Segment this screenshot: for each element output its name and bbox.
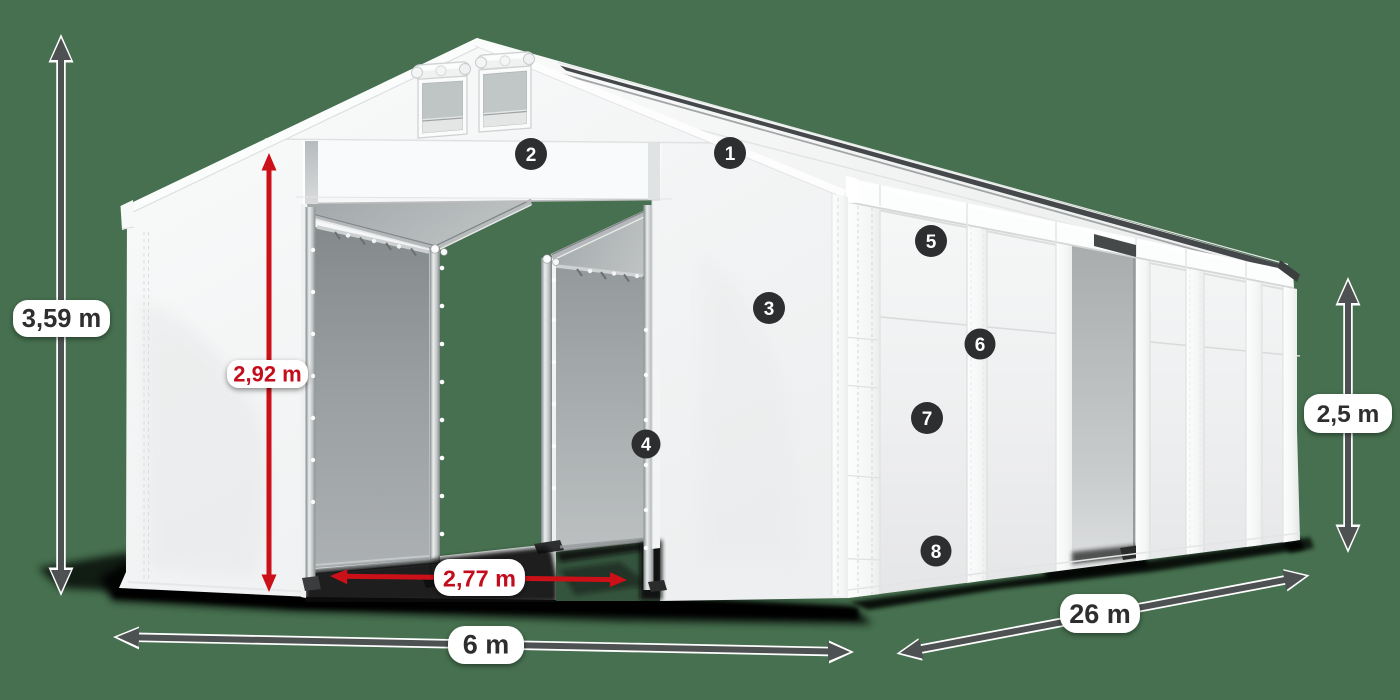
svg-text:3,59 m: 3,59 m: [22, 305, 101, 333]
svg-text:6 m: 6 m: [463, 630, 510, 660]
svg-text:1: 1: [725, 144, 736, 165]
svg-text:8: 8: [931, 542, 942, 563]
svg-text:7: 7: [922, 409, 933, 430]
svg-text:2,92 m: 2,92 m: [233, 362, 302, 387]
svg-text:2: 2: [526, 145, 537, 166]
svg-text:6: 6: [975, 335, 986, 356]
svg-text:26 m: 26 m: [1069, 599, 1131, 629]
svg-text:2,77 m: 2,77 m: [443, 566, 516, 592]
svg-text:5: 5: [926, 232, 937, 253]
svg-text:3: 3: [764, 299, 775, 320]
svg-text:2,5 m: 2,5 m: [1317, 401, 1380, 428]
svg-text:4: 4: [641, 435, 651, 455]
